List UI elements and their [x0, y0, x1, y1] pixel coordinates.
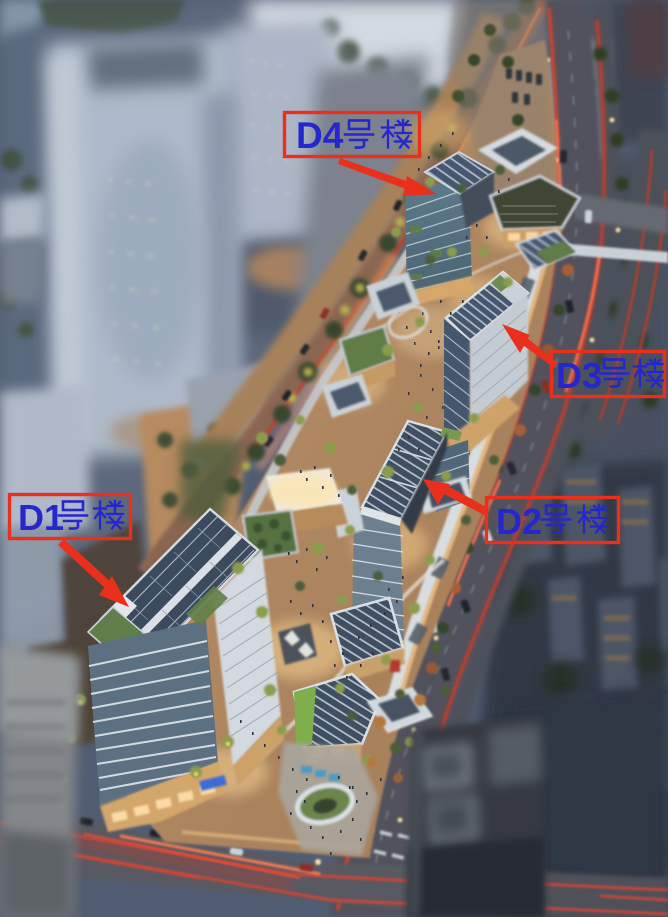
- svg-text:D3: D3: [556, 355, 602, 396]
- svg-text:D4: D4: [296, 115, 344, 156]
- svg-text:D2: D2: [496, 501, 542, 542]
- svg-text:D1: D1: [18, 497, 64, 538]
